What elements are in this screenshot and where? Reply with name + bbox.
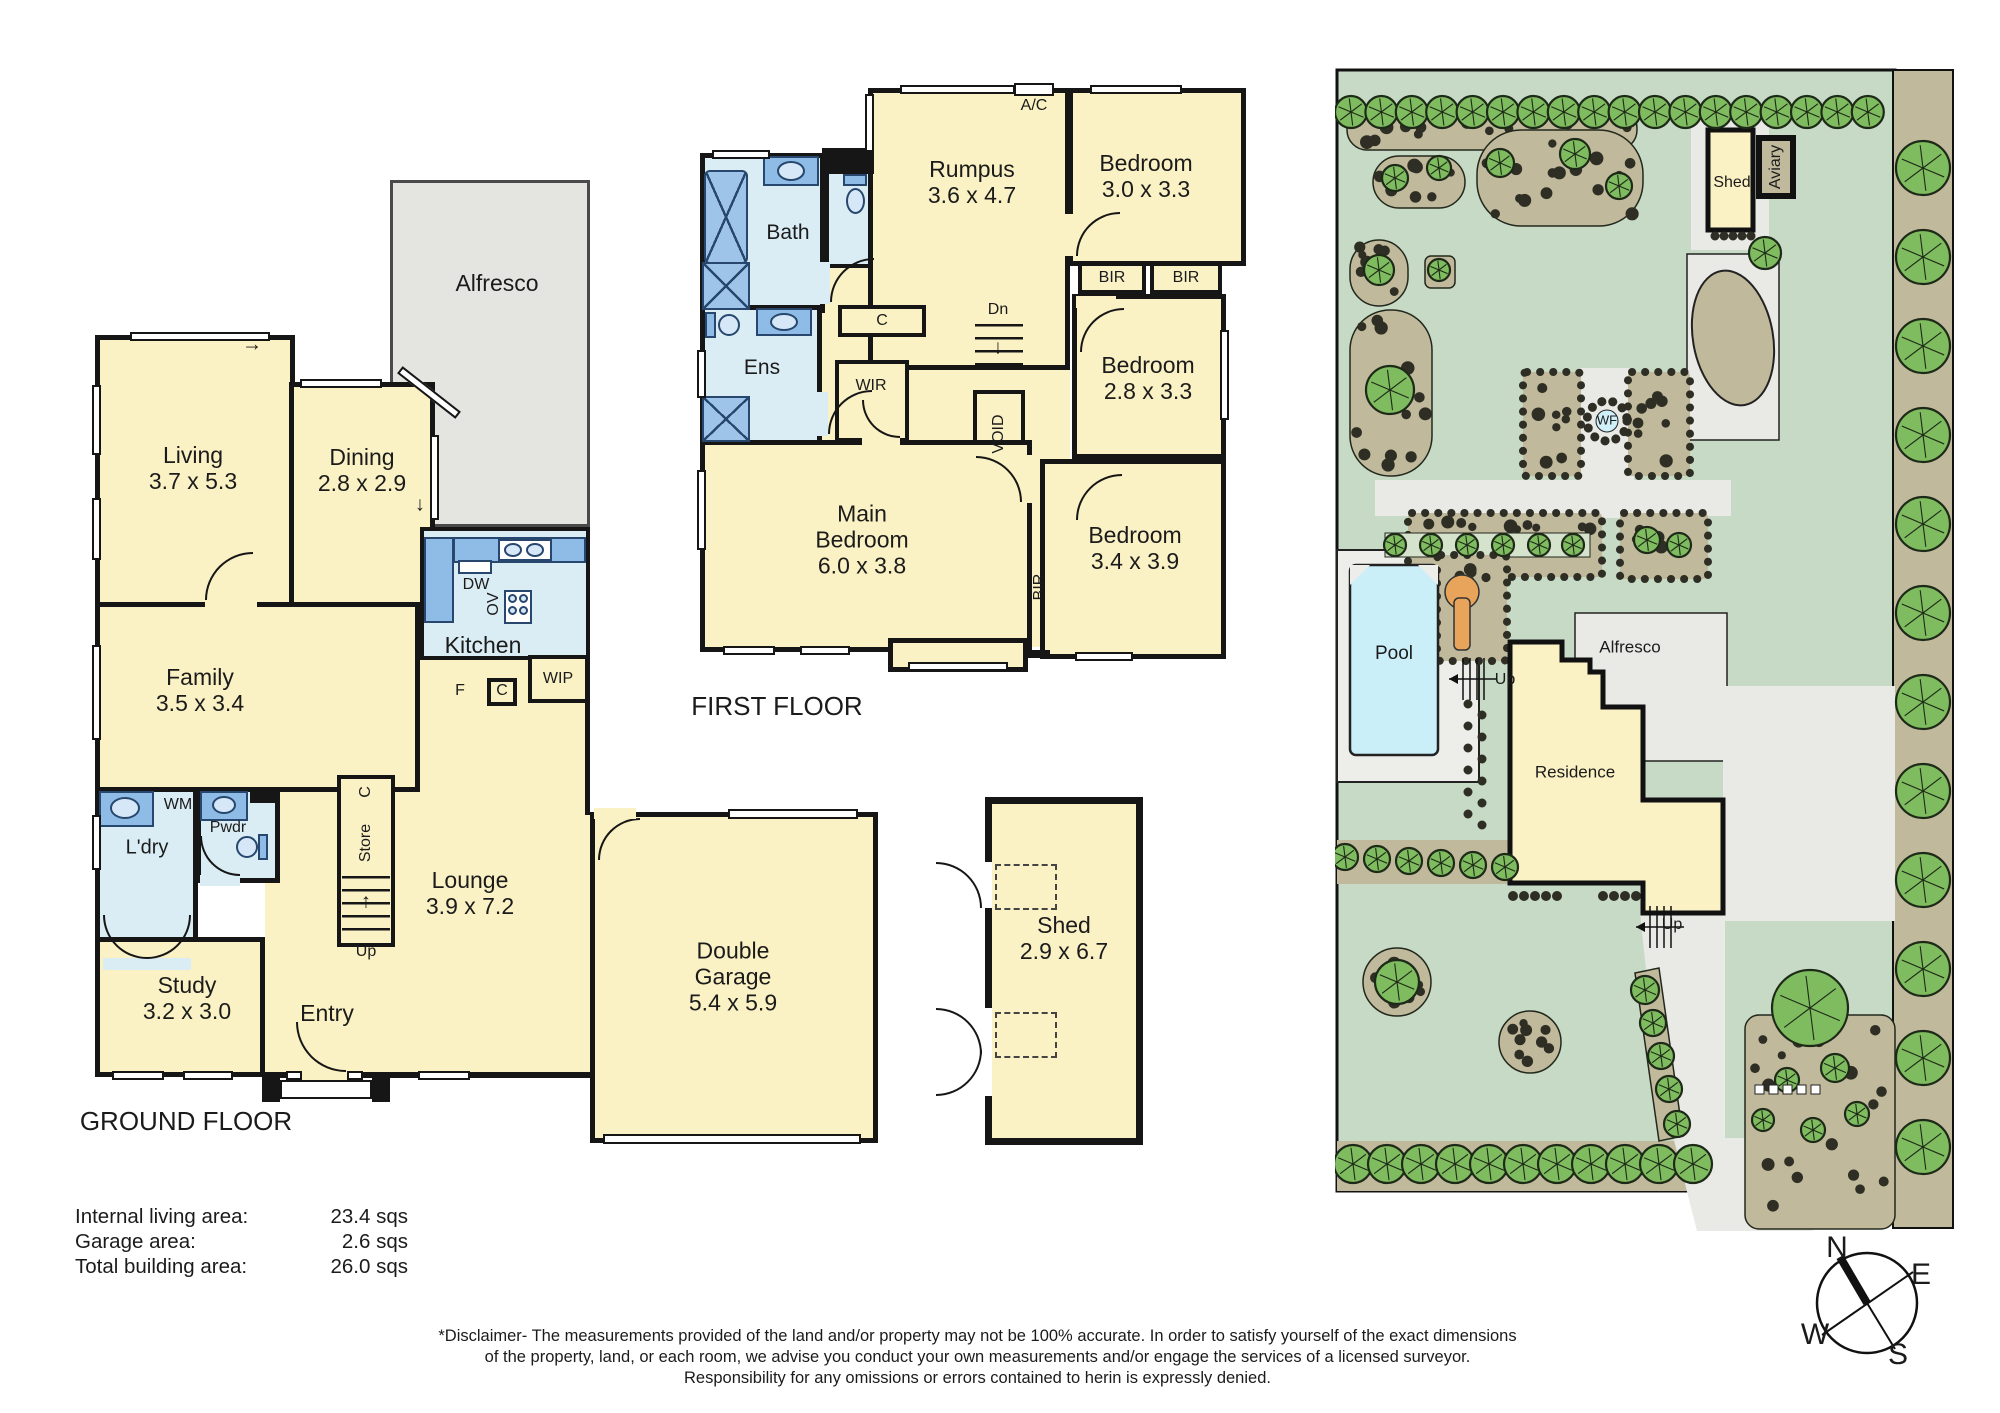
tree-icon: [1896, 853, 1950, 907]
tree-icon: [1896, 942, 1950, 996]
shrub-icon: [1358, 251, 1366, 259]
shrub-icon: [1879, 1177, 1889, 1187]
shrub-row-icon: [1478, 777, 1487, 786]
disclaimer-line: *Disclaimer- The measurements provided o…: [330, 1326, 1625, 1347]
tree-icon: [1896, 408, 1950, 462]
window-icon: [112, 1071, 164, 1080]
shrub-row-icon: [1530, 891, 1540, 901]
disclaimer-line: of the property, land, or each room, we …: [330, 1347, 1625, 1368]
tree-icon: [1366, 366, 1414, 414]
tree-icon: [1368, 1145, 1406, 1183]
tree-icon: [1538, 1145, 1576, 1183]
shrub-icon: [1536, 1036, 1547, 1047]
shrub-icon: [1410, 191, 1422, 203]
shrub-icon: [1468, 523, 1476, 531]
shrub-icon: [1358, 448, 1370, 460]
shower-icon: [702, 262, 750, 310]
tree-icon: [1896, 675, 1950, 729]
disclaimer-line: Responsibility for any omissions or erro…: [330, 1368, 1625, 1389]
window-icon: [430, 435, 439, 520]
gf-dw-label: DW: [463, 576, 490, 594]
room-name: Main: [837, 501, 887, 527]
shrub-icon: [1419, 407, 1432, 420]
tree-icon: [1896, 319, 1950, 373]
window-icon: [1220, 330, 1229, 420]
low-hedge-strip: [1385, 533, 1590, 557]
tree-icon: [1821, 96, 1853, 128]
gf-store-label: Store: [357, 824, 375, 862]
tree-icon: [1428, 259, 1450, 281]
tree-icon: [1486, 149, 1514, 177]
tree-icon: [1396, 848, 1422, 874]
shrub-icon: [1414, 130, 1423, 139]
tree-icon: [1634, 527, 1660, 553]
tree-icon: [1470, 1145, 1508, 1183]
shed-plan-label: Shed 2.9 x 6.7: [1020, 912, 1108, 964]
shrub-icon: [1552, 423, 1560, 431]
tree-icon: [1528, 534, 1550, 556]
tree-icon: [1664, 1111, 1690, 1137]
door-gap: [1064, 472, 1076, 518]
ff-mainbed-label: Main Bedroom 6.0 x 3.8: [815, 501, 908, 580]
shrub-row-icon: [1631, 891, 1641, 901]
shrub-icon: [1784, 1157, 1794, 1167]
window-icon: [1090, 85, 1182, 94]
shrub-icon: [1656, 395, 1668, 407]
tree-icon: [1791, 96, 1823, 128]
tree-icon: [1674, 1145, 1712, 1183]
direction-arrow-icon: →: [242, 334, 262, 357]
gf-stair-c-label: C: [357, 786, 375, 798]
tree-icon: [1572, 1145, 1610, 1183]
gf-fridge-label: F: [455, 682, 465, 700]
shrub-icon: [1485, 126, 1494, 135]
shrub-icon: [1532, 407, 1546, 421]
tree-icon: [1648, 1043, 1674, 1069]
tree-icon: [1384, 534, 1406, 556]
gf-stairs-up-arrow-icon: ↑: [361, 891, 371, 914]
ff-bath-label: Bath: [766, 221, 809, 245]
area-value: 26.0 sqs: [313, 1254, 408, 1279]
floorplan-page: Alfresco ↑: [0, 0, 2000, 1413]
tree-icon: [1609, 96, 1641, 128]
tree-icon: [1504, 1145, 1542, 1183]
feature-sculpture-icon: [1454, 598, 1470, 650]
site-alfresco-label: Alfresco: [1599, 637, 1660, 656]
shrub-icon: [1592, 184, 1603, 195]
tree-icon: [1427, 156, 1451, 180]
area-label: Internal living area:: [75, 1204, 313, 1229]
ff-stairs-down-arrow-icon: ↓: [993, 337, 1003, 360]
window-icon: [183, 1071, 233, 1080]
tree-icon: [1606, 1145, 1644, 1183]
shrub-icon: [1410, 161, 1423, 174]
tree-icon: [1896, 1120, 1950, 1174]
window-icon: [347, 1071, 363, 1080]
ff-ac-label: A/C: [1021, 97, 1048, 115]
window-icon: [908, 662, 1008, 671]
tree-icon: [1700, 96, 1732, 128]
area-row: Total building area: 26.0 sqs: [75, 1254, 408, 1279]
window-icon: [92, 385, 101, 455]
shrub-icon: [1625, 158, 1636, 169]
gf-living-label: Living 3.7 x 5.3: [149, 442, 237, 494]
tree-icon: [1852, 96, 1884, 128]
shrub-icon: [1523, 520, 1533, 530]
site-pool-label: Pool: [1375, 643, 1413, 665]
shrub-icon: [1507, 1024, 1518, 1035]
room-name: Living: [163, 442, 223, 468]
compass-w: W: [1801, 1318, 1829, 1352]
shrub-icon: [1541, 187, 1553, 199]
shrub-row-icon: [1464, 810, 1473, 819]
shrub-icon: [1504, 519, 1518, 533]
tree-icon: [1772, 970, 1848, 1046]
room-dims: 3.4 x 3.9: [1091, 548, 1179, 574]
gf-study-label: Study 3.2 x 3.0: [143, 972, 231, 1024]
site-residence-label: Residence: [1535, 762, 1615, 781]
ff-bed3-label: Bedroom 3.4 x 3.9: [1088, 522, 1181, 574]
gf-wm-label: WM: [164, 796, 192, 814]
tree-icon: [1365, 96, 1397, 128]
shrub-icon: [1556, 453, 1567, 464]
window-icon: [865, 94, 874, 152]
compass-rose: N E W S: [1795, 1235, 1955, 1395]
porch-wall: [372, 1077, 390, 1102]
burner-icon: [508, 606, 517, 615]
paver-icon: [1755, 1085, 1764, 1094]
gf-alfresco-label: Alfresco: [455, 270, 538, 296]
shrub-row-icon: [1478, 755, 1487, 764]
toilet-cistern-icon: [705, 312, 716, 338]
tree-icon: [1752, 1109, 1774, 1131]
shrub-row-icon: [1464, 788, 1473, 797]
gf-kitchen-label: Kitchen: [445, 632, 522, 658]
window-icon: [286, 1071, 302, 1080]
tree-icon: [1548, 96, 1580, 128]
gf-family-label: Family 3.5 x 3.4: [156, 664, 244, 716]
tree-icon: [1375, 960, 1419, 1004]
window-icon: [1075, 652, 1133, 661]
window-icon: [92, 498, 101, 560]
tree-icon: [1457, 96, 1489, 128]
tree-icon: [1396, 96, 1428, 128]
shrub-icon: [1357, 322, 1366, 331]
room-name: Double: [697, 938, 770, 964]
shrub-icon: [1405, 451, 1416, 462]
ff-wall-chunk: [1025, 650, 1050, 658]
room-dims: 6.0 x 3.8: [818, 553, 906, 579]
shrub-icon: [1578, 522, 1587, 531]
compass-s: S: [1888, 1338, 1908, 1372]
shrub-icon: [1626, 207, 1639, 220]
tree-icon: [1821, 1054, 1849, 1082]
ff-c-label: C: [876, 312, 888, 330]
tree-icon: [1335, 844, 1358, 870]
room-name: Shed: [1037, 912, 1091, 938]
area-value: 2.6 sqs: [313, 1229, 408, 1254]
shrub-icon: [1562, 407, 1571, 416]
area-summary: Internal living area: 23.4 sqs Garage ar…: [75, 1204, 408, 1279]
tree-icon: [1335, 1145, 1372, 1183]
tree-icon: [1382, 165, 1408, 191]
area-row: Garage area: 2.6 sqs: [75, 1229, 408, 1254]
room-name2: Garage: [695, 964, 772, 990]
room-dims: 3.9 x 7.2: [426, 893, 514, 919]
tree-icon: [1845, 1102, 1869, 1126]
paver-icon: [1811, 1085, 1820, 1094]
door-gap: [1076, 296, 1116, 308]
shrub-icon: [1491, 209, 1500, 218]
shrub-icon: [1660, 454, 1673, 467]
room-dims: 2.8 x 3.3: [1104, 378, 1192, 404]
tree-icon: [1428, 850, 1454, 876]
shrub-row-icon: [1478, 733, 1487, 742]
room-dims: 2.8 x 2.9: [318, 470, 406, 496]
tree-icon: [1730, 96, 1762, 128]
shrub-row-icon: [1464, 744, 1473, 753]
window-icon: [900, 85, 1015, 94]
shrub-icon: [1532, 524, 1540, 532]
shrub-icon: [1762, 1158, 1775, 1171]
tree-icon: [1562, 534, 1584, 556]
ff-wir-label: WIR: [855, 377, 886, 395]
paver-icon: [1769, 1085, 1778, 1094]
tree-icon: [1639, 96, 1671, 128]
shrub-row-icon: [1541, 891, 1551, 901]
shrub-row-icon: [1478, 799, 1487, 808]
shrub-icon: [1522, 1056, 1533, 1067]
shrub-icon: [1792, 1172, 1803, 1183]
shrub-icon: [1414, 392, 1425, 403]
site-aviary-label: Aviary: [1767, 145, 1785, 189]
window-icon: [92, 645, 101, 740]
shed-dashed-area: [995, 864, 1057, 910]
tree-icon: [1669, 96, 1701, 128]
shrub-icon: [1423, 519, 1434, 530]
door-gap: [200, 875, 240, 886]
tree-icon: [1426, 96, 1458, 128]
shrub-icon: [1481, 573, 1490, 582]
shrub-icon: [1645, 398, 1656, 409]
site-up2-label: Up: [1662, 916, 1682, 934]
room-name2: Bedroom: [815, 527, 908, 553]
window-icon: [697, 470, 706, 550]
gf-lounge-label: Lounge 3.9 x 7.2: [426, 867, 514, 919]
site-shed-label: Shed: [1713, 174, 1750, 192]
tree-icon: [1420, 534, 1442, 556]
shrub-icon: [1826, 1138, 1838, 1150]
shrub-icon: [1381, 458, 1394, 471]
shrub-icon: [1360, 135, 1374, 149]
gf-entry-label: Entry: [300, 1000, 354, 1026]
porch-step: [280, 1080, 372, 1099]
tree-icon: [1335, 96, 1367, 128]
tree-icon: [1749, 237, 1781, 269]
sink-bowl2-icon: [526, 543, 544, 557]
shrub-row-icon: [1552, 891, 1562, 901]
site-wf-label: WF: [1597, 414, 1617, 429]
tree-icon: [1631, 976, 1659, 1004]
shrub-icon: [1661, 419, 1670, 428]
shrub-icon: [1351, 427, 1362, 438]
door-gap: [1022, 455, 1034, 503]
ff-bir-label: BIR: [1099, 269, 1126, 287]
gf-cupboard-label: C: [496, 682, 508, 700]
dishwasher-icon: [458, 560, 492, 574]
shrub-row-icon: [1519, 891, 1529, 901]
tree-icon: [1761, 96, 1793, 128]
sink-bowl-icon: [504, 543, 522, 557]
area-label: Total building area:: [75, 1254, 313, 1279]
shrub-row-icon: [1464, 700, 1473, 709]
shrub-icon: [1868, 1099, 1878, 1109]
window-icon: [728, 809, 858, 819]
tree-icon: [1667, 533, 1691, 557]
tree-icon: [1656, 1076, 1682, 1102]
tree-icon: [1896, 1031, 1950, 1085]
burner-icon: [508, 594, 517, 603]
tree-icon: [1896, 230, 1950, 284]
trough-icon: [110, 797, 140, 819]
shrub-row-icon: [1747, 232, 1756, 241]
gf-ov-label: OV: [485, 592, 503, 615]
tree-icon: [1578, 96, 1610, 128]
shrub-icon: [1590, 152, 1604, 166]
room-name: Bedroom: [1099, 150, 1192, 176]
shower-icon: [702, 396, 750, 442]
window-icon: [418, 1071, 470, 1080]
paver-icon: [1783, 1085, 1792, 1094]
tree-icon: [1402, 1145, 1440, 1183]
shrub-icon: [1540, 456, 1553, 469]
shrub-icon: [1537, 383, 1547, 393]
shrub-icon: [1548, 139, 1556, 147]
compass-n: N: [1826, 1231, 1848, 1265]
burner-icon: [519, 594, 528, 603]
tree-icon: [1364, 255, 1394, 285]
window-icon: [712, 150, 770, 159]
tree-icon: [1492, 534, 1514, 556]
shrub-icon: [1876, 1086, 1886, 1096]
toilet-bowl-icon: [718, 314, 740, 336]
kitchen-bench-icon: [424, 537, 454, 623]
bathtub-icon: [704, 170, 748, 264]
toilet-cistern-icon: [258, 834, 268, 860]
area-label: Garage area:: [75, 1229, 313, 1254]
shed-dashed-area: [995, 1012, 1057, 1058]
room-name: Family: [166, 664, 234, 690]
room-dims: 3.7 x 5.3: [149, 468, 237, 494]
shrub-icon: [1514, 1034, 1525, 1045]
shrub-row-icon: [1464, 766, 1473, 775]
room-dims: 3.5 x 3.4: [156, 690, 244, 716]
shrub-row-icon: [1609, 891, 1619, 901]
tree-icon: [1640, 1145, 1678, 1183]
shrub-icon: [1758, 1035, 1767, 1044]
door-arc-icon: [936, 1008, 982, 1054]
basin-bowl-icon: [777, 161, 805, 181]
gf-dining-label: Dining 2.8 x 2.9: [318, 444, 406, 496]
shrub-icon: [1767, 1200, 1779, 1212]
ff-dn-label: Dn: [988, 301, 1008, 319]
room-dims: 5.4 x 5.9: [689, 990, 777, 1016]
area-value: 23.4 sqs: [313, 1204, 408, 1229]
ff-bir-label: BIR: [1173, 269, 1200, 287]
tree-icon: [1896, 141, 1950, 195]
window-icon: [723, 646, 775, 655]
room-dims: 3.6 x 4.7: [928, 182, 1016, 208]
door-gap: [818, 262, 830, 304]
shrub-icon: [1848, 1170, 1859, 1181]
shrub-row-icon: [1720, 232, 1729, 241]
room-name: Rumpus: [929, 156, 1015, 182]
room-dims: 3.2 x 3.0: [143, 998, 231, 1024]
compass-e: E: [1911, 1258, 1931, 1292]
gf-lounge-right-wall: [585, 655, 590, 815]
tree-icon: [1896, 497, 1950, 551]
disclaimer-text: *Disclaimer- The measurements provided o…: [330, 1326, 1625, 1388]
ground-floor-title: GROUND FLOOR: [80, 1107, 292, 1137]
tree-icon: [1801, 1118, 1825, 1142]
east-patio: [1723, 686, 1895, 921]
shrub-icon: [1778, 1051, 1786, 1059]
room-name: Study: [158, 972, 217, 998]
paver-icon: [1797, 1085, 1806, 1094]
gf-wip-label: WIP: [543, 670, 573, 688]
tree-icon: [1456, 534, 1478, 556]
shrub-row-icon: [1464, 722, 1473, 731]
tree-icon: [1606, 173, 1632, 199]
toilet-bowl-icon: [236, 836, 258, 858]
site-up-label: Up: [1495, 671, 1515, 689]
shrub-row-icon: [1711, 232, 1720, 241]
area-row: Internal living area: 23.4 sqs: [75, 1204, 408, 1229]
room-name: Bedroom: [1088, 522, 1181, 548]
ff-bed2-label: Bedroom 2.8 x 3.3: [1101, 352, 1194, 404]
ff-bir3-label: BIR: [1031, 574, 1049, 601]
window-icon: [800, 646, 850, 655]
shrub-icon: [1371, 315, 1383, 327]
room-dims: 2.9 x 6.7: [1020, 938, 1108, 964]
shrub-icon: [1540, 1025, 1550, 1035]
shrub-icon: [1634, 429, 1643, 438]
gf-family-room: [95, 602, 420, 792]
toilet-cistern-icon: [843, 174, 867, 186]
tree-icon: [1364, 846, 1390, 872]
shrub-icon: [1518, 194, 1531, 207]
first-floor-title: FIRST FLOOR: [691, 692, 862, 722]
room-dims: 3.0 x 3.3: [1102, 176, 1190, 202]
tree-icon: [1896, 586, 1950, 640]
ff-ens-label: Ens: [744, 356, 780, 380]
tree-icon: [1517, 96, 1549, 128]
shrub-icon: [1390, 287, 1399, 296]
shrub-icon: [1548, 168, 1558, 178]
direction-arrow-icon: ↓: [415, 494, 425, 517]
tree-icon: [1492, 854, 1518, 880]
room-name: Bedroom: [1101, 352, 1194, 378]
shrub-row-icon: [1598, 891, 1608, 901]
tree-icon: [1487, 96, 1519, 128]
window-icon: [300, 379, 382, 388]
gf-powder-label: Pwdr: [210, 819, 246, 837]
porch-wall: [262, 1077, 280, 1102]
shrub-icon: [1750, 1063, 1760, 1073]
tree-icon: [1896, 764, 1950, 818]
shrub-icon: [1855, 1184, 1865, 1194]
gf-laundry-label: L'dry: [126, 837, 169, 860]
